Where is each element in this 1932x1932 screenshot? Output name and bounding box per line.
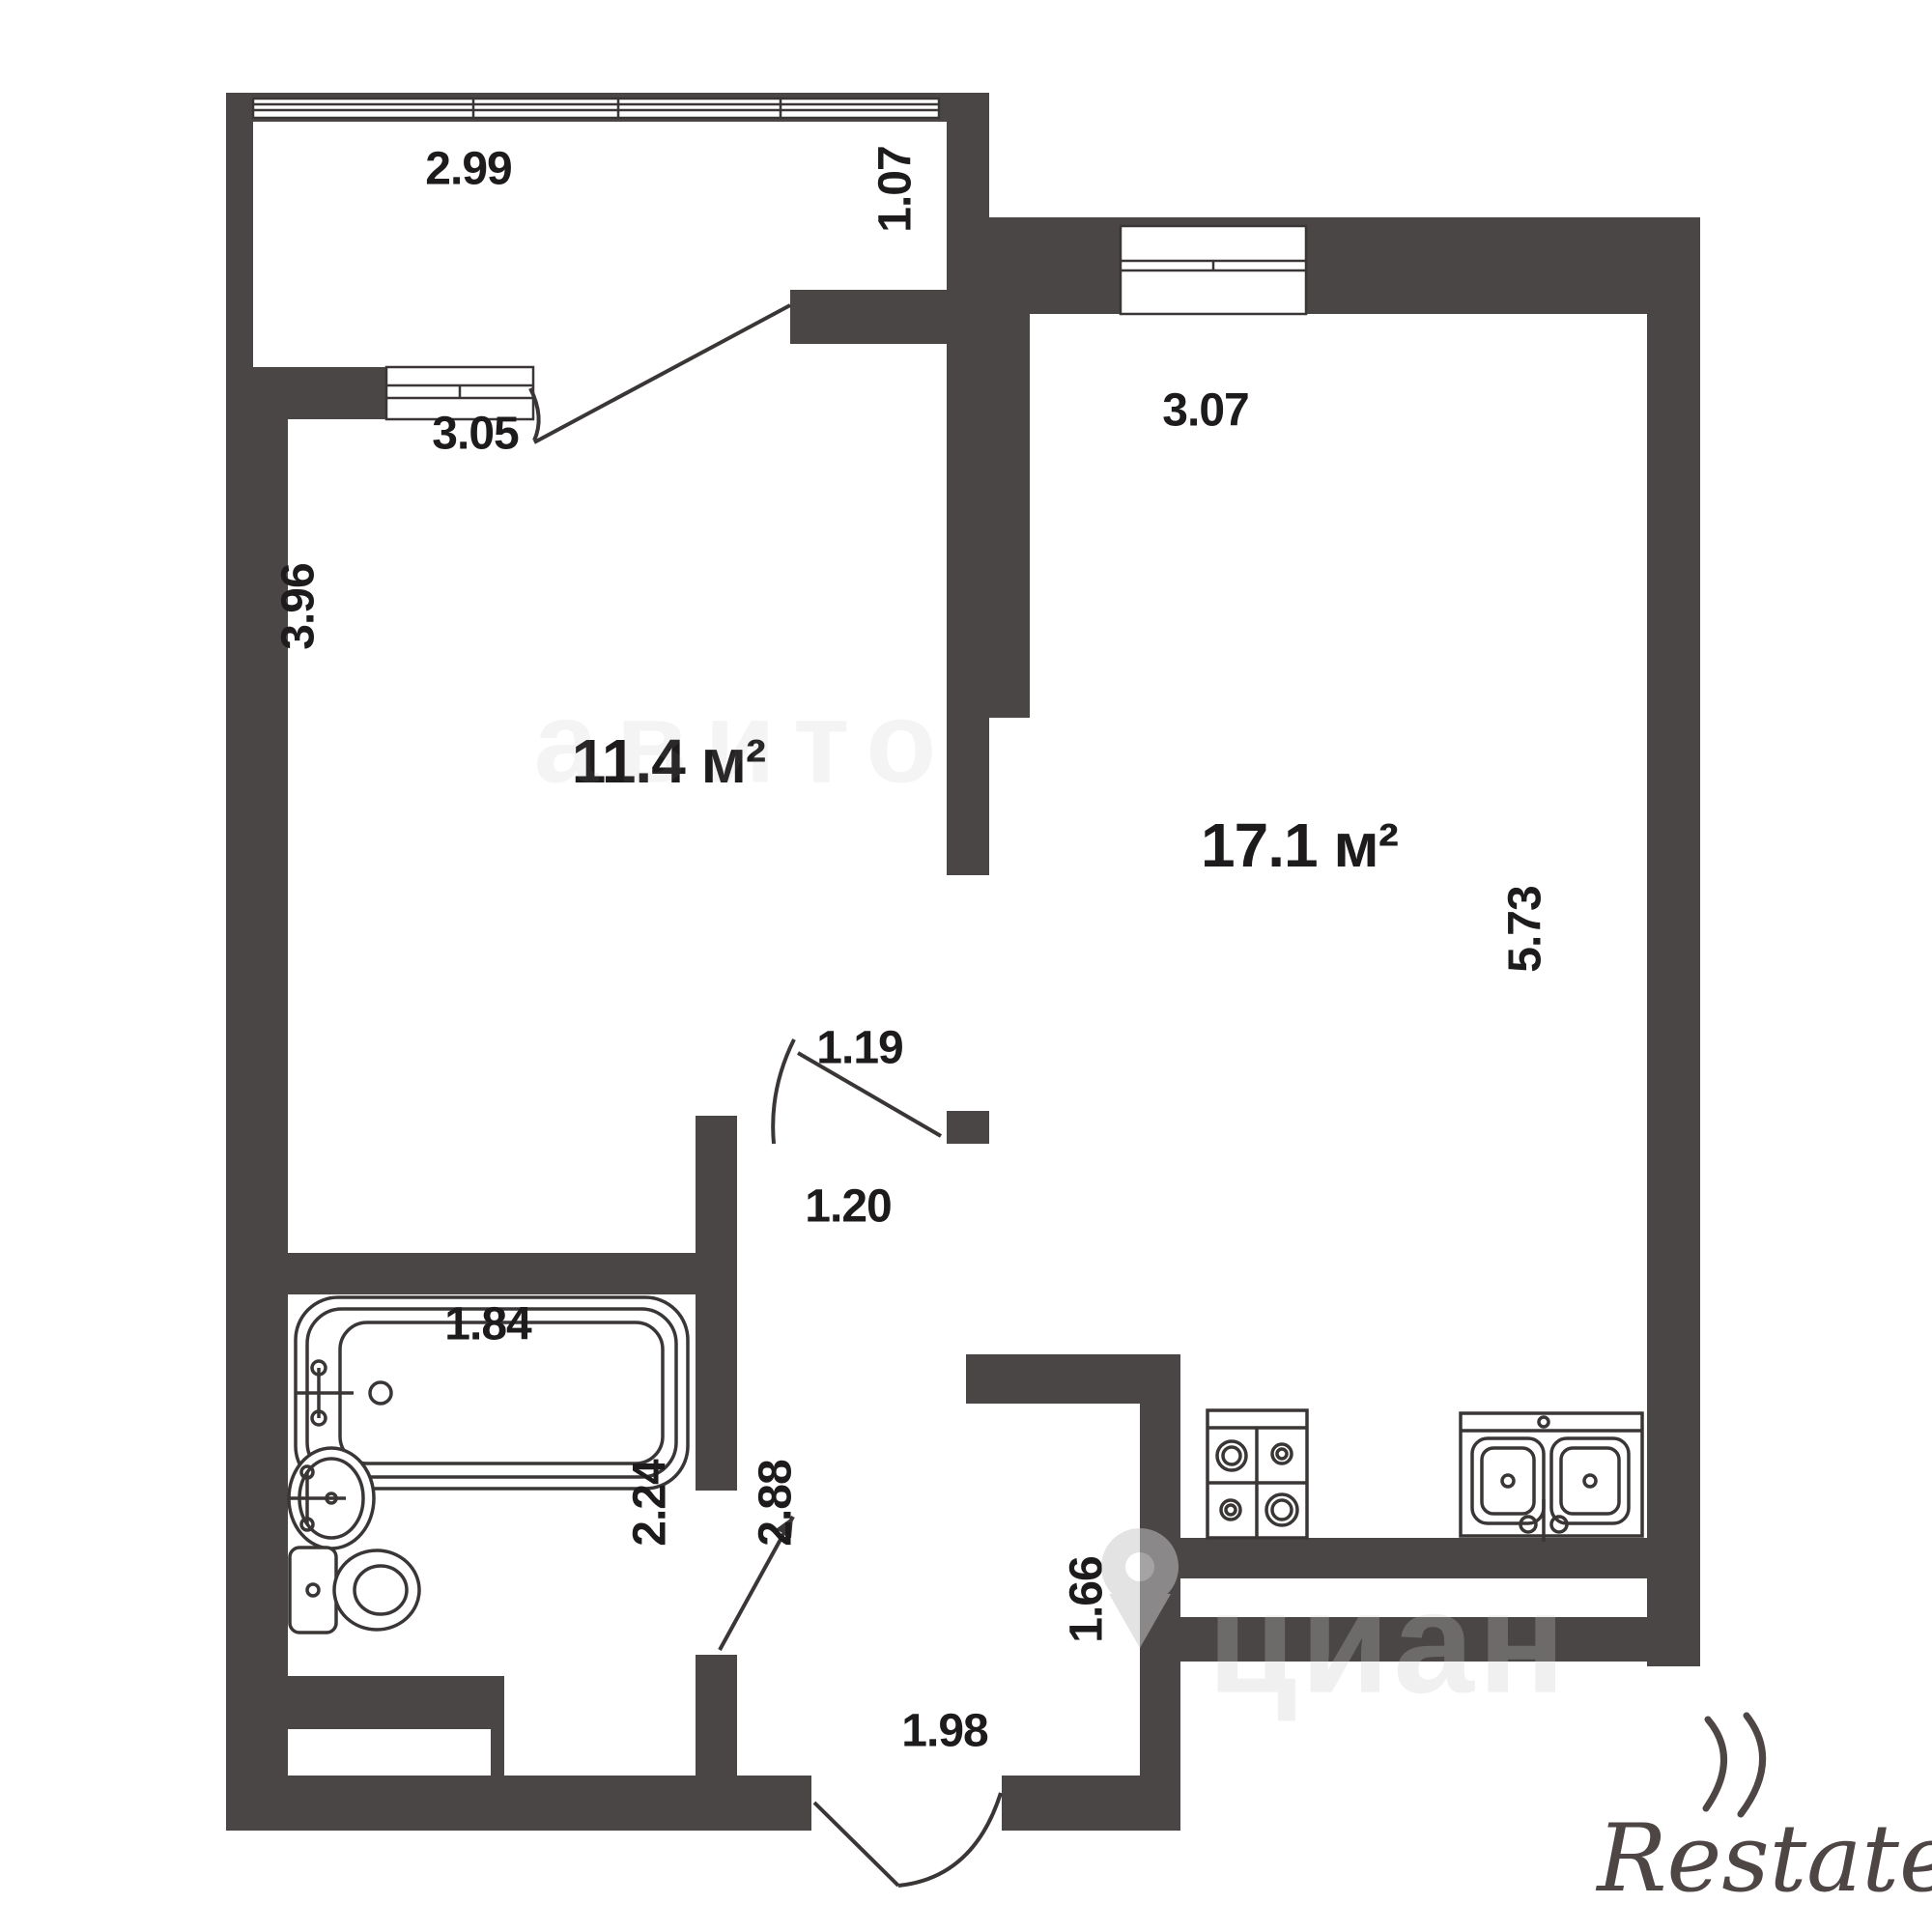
wall-niche-connector [491, 1729, 504, 1776]
balcony-window [253, 99, 939, 118]
dim-bathtub-length: 1.84 [444, 1299, 532, 1350]
stove-symbol [1207, 1410, 1307, 1538]
dim-balcony-width: 2.99 [425, 144, 511, 195]
dim-bathroom: 2.24 [625, 1459, 676, 1547]
wall-right-outer [1647, 217, 1700, 1666]
wall-bathroom-top [226, 1253, 737, 1294]
entrance-door [814, 1793, 1001, 1886]
wall-bottom-left [226, 1776, 811, 1831]
wall-bathroom-right-upper [696, 1116, 737, 1491]
cian-watermark-text: циан [1207, 1561, 1569, 1723]
kitchen-sink-symbol [1461, 1413, 1642, 1542]
dim-entrance-width: 1.98 [901, 1706, 988, 1757]
dim-room1-door: 1.19 [816, 1023, 902, 1074]
wall-central-widening [989, 261, 1030, 718]
dim-hall-width: 1.20 [805, 1181, 891, 1233]
wall-balcony-room-left [226, 367, 386, 419]
washbasin-symbol [289, 1448, 374, 1548]
wall-room2-top [989, 217, 1700, 314]
floor-plan-drawing: 11.4 м² 17.1 м² 2.99 1.07 3.05 3.96 3.07… [0, 0, 1932, 1932]
dim-room1-window: 3.05 [432, 409, 519, 460]
toilet-symbol [290, 1548, 419, 1633]
dim-hall-length: 2.88 [751, 1460, 802, 1547]
restate-logo: Restate [1595, 1716, 1932, 1913]
floor-plan-page: 11.4 м² 17.1 м² 2.99 1.07 3.05 3.96 3.07… [0, 0, 1932, 1932]
room2-window [1121, 226, 1306, 314]
windows-layer [253, 99, 1306, 419]
dim-room1-depth: 3.96 [273, 563, 325, 649]
restate-logo-text: Restate [1595, 1804, 1932, 1913]
balcony-door [530, 305, 790, 442]
dim-balcony-depth: 1.07 [870, 146, 922, 232]
doors-layer [530, 305, 1001, 1886]
room2-area-label: 17.1 м² [1201, 810, 1398, 880]
wall-bathroom-bottom-inner [288, 1676, 504, 1729]
dim-room2-window: 3.07 [1162, 385, 1248, 437]
dim-room2-depth: 5.73 [1500, 886, 1551, 972]
wall-balcony-stub [790, 290, 947, 344]
avito-watermark: авито [534, 678, 954, 808]
wall-central-door-stub [947, 1111, 989, 1144]
